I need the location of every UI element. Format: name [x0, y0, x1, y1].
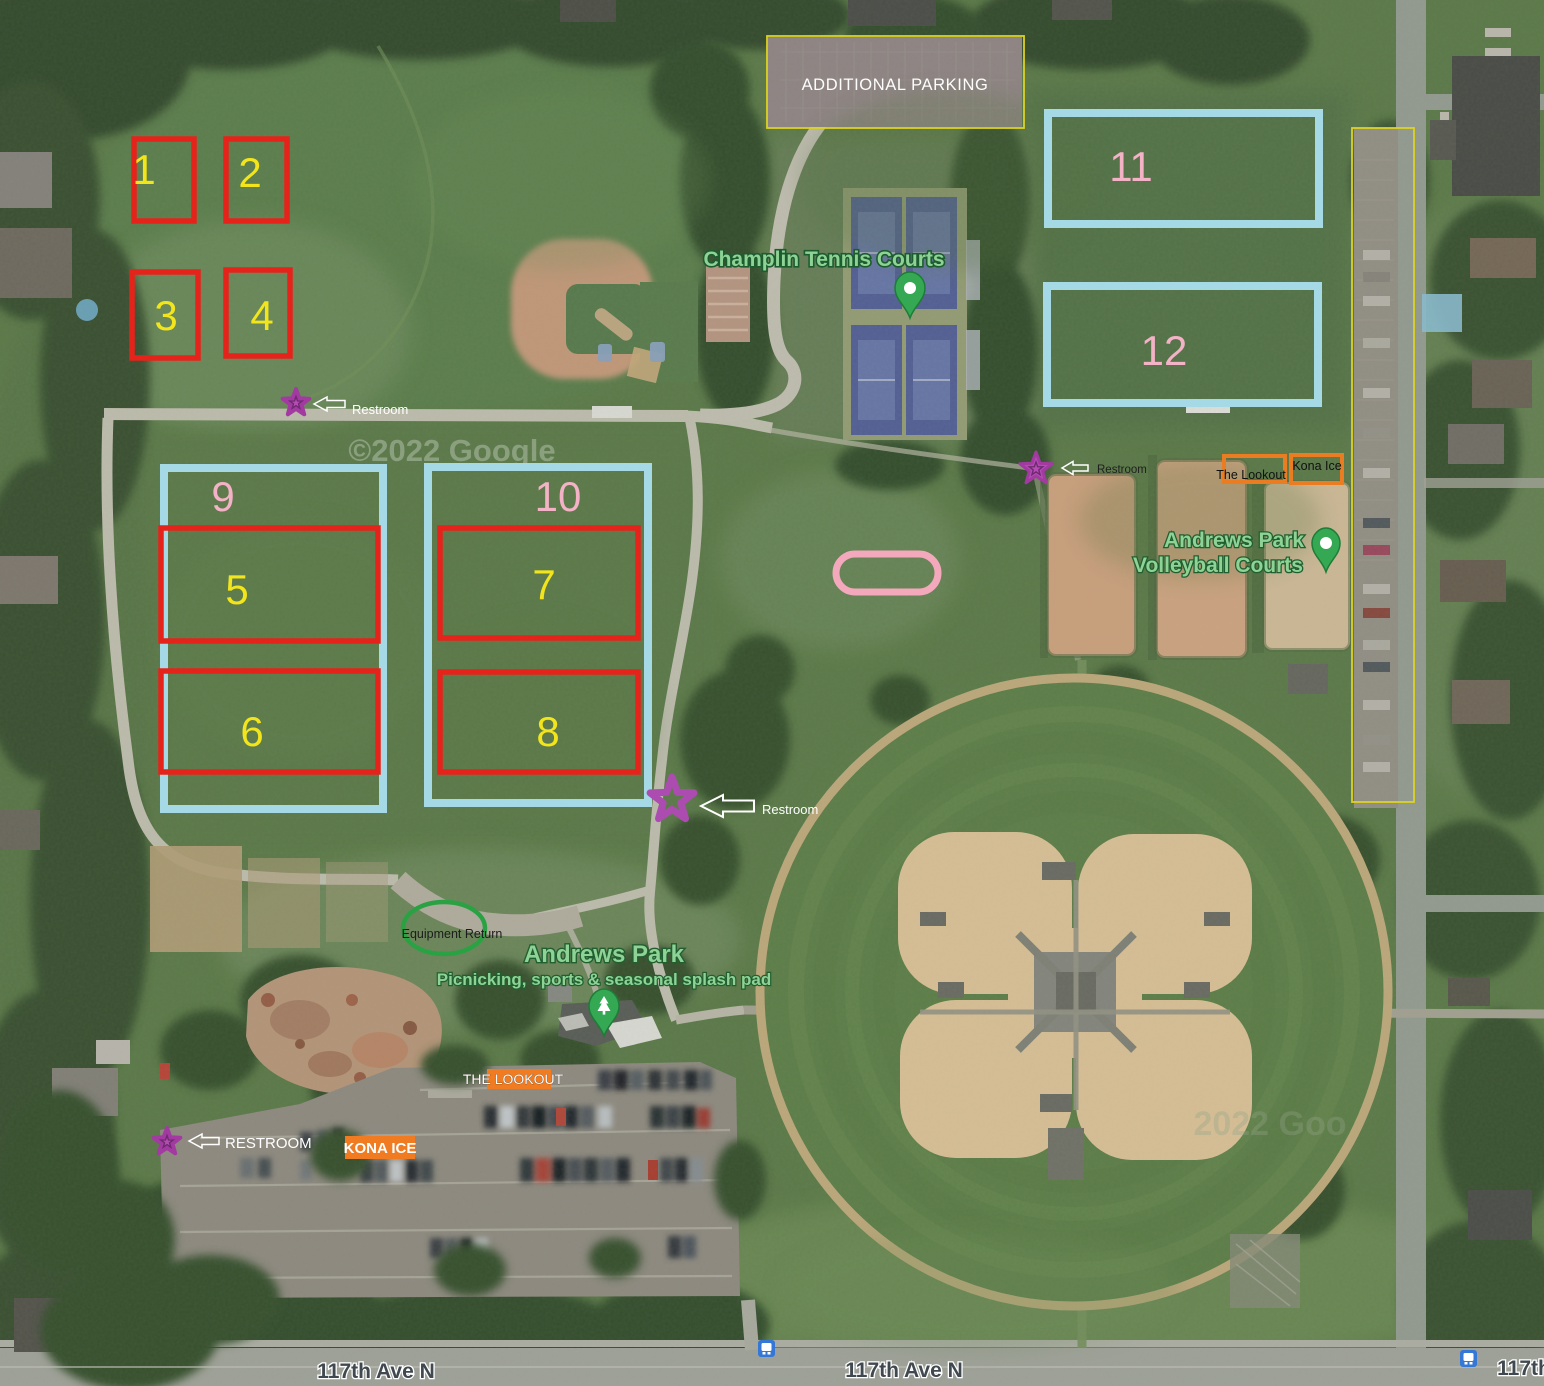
svg-text:Andrews Park: Andrews Park — [1164, 529, 1304, 552]
svg-text:Andrews Park: Andrews Park — [524, 941, 685, 968]
svg-text:Champlin Tennis Courts: Champlin Tennis Courts — [703, 248, 944, 271]
svg-text:RESTROOM: RESTROOM — [225, 1135, 312, 1152]
svg-text:117th Ave N: 117th Ave N — [845, 1359, 963, 1382]
svg-text:9: 9 — [211, 473, 234, 520]
svg-text:117th: 117th — [1497, 1357, 1544, 1380]
svg-text:©2022 Google: ©2022 Google — [348, 433, 555, 468]
svg-text:ADDITIONAL PARKING: ADDITIONAL PARKING — [802, 76, 989, 94]
svg-text:4: 4 — [250, 292, 273, 339]
svg-text:Restroom: Restroom — [352, 402, 408, 417]
svg-text:11: 11 — [1109, 143, 1153, 190]
svg-text:Restroom: Restroom — [762, 802, 818, 817]
svg-text:2: 2 — [238, 149, 261, 196]
svg-text:1: 1 — [132, 146, 155, 193]
svg-text:7: 7 — [532, 561, 555, 608]
svg-text:The Lookout: The Lookout — [1216, 468, 1286, 482]
svg-text:10: 10 — [535, 473, 582, 520]
svg-text:Equipment Return: Equipment Return — [402, 927, 503, 941]
svg-text:KONA ICE: KONA ICE — [344, 1140, 417, 1157]
svg-text:Kona Ice: Kona Ice — [1292, 459, 1341, 473]
svg-text:12: 12 — [1141, 327, 1188, 374]
svg-text:THE LOOKOUT: THE LOOKOUT — [463, 1071, 564, 1087]
svg-text:2022 Goo: 2022 Goo — [1193, 1105, 1346, 1143]
svg-text:Volleyball Courts: Volleyball Courts — [1133, 554, 1303, 577]
svg-text:8: 8 — [536, 708, 559, 755]
svg-text:6: 6 — [240, 708, 263, 755]
svg-text:3: 3 — [154, 292, 177, 339]
svg-text:5: 5 — [225, 566, 248, 613]
svg-text:Restroom: Restroom — [1097, 464, 1147, 476]
svg-text:Picnicking, sports & seasonal: Picnicking, sports & seasonal splash pad — [437, 970, 771, 989]
svg-text:117th Ave N: 117th Ave N — [317, 1360, 435, 1383]
